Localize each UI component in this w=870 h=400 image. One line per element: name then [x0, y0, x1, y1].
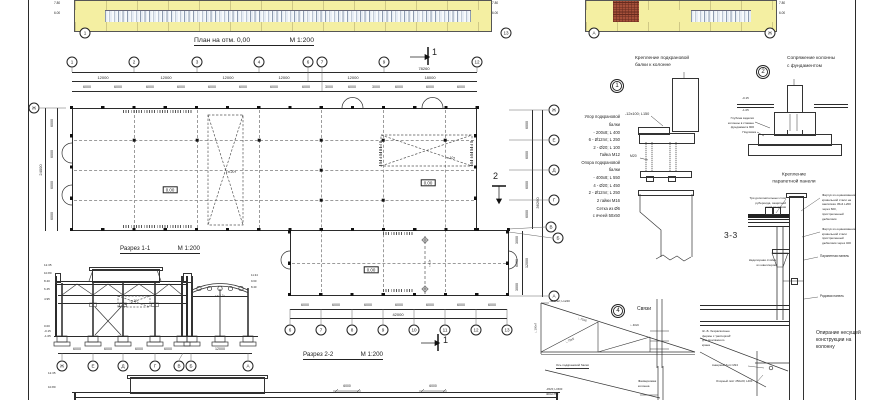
- section2-dims: [333, 389, 447, 393]
- drawing-sheet: 7.80 6.00 7.80 6.00 1 13 7.80 6.00 А Ж П…: [0, 0, 870, 400]
- plan-doors: [62, 98, 517, 270]
- axis-leaders: [40, 67, 552, 360]
- section-markers: [410, 47, 506, 351]
- detail2-linework: [755, 79, 797, 136]
- detail1-linework: [640, 72, 692, 261]
- plan-crane-zones: [208, 115, 472, 294]
- detail4-linework: [541, 299, 695, 400]
- detail33-linework: [700, 198, 820, 396]
- linework-overlay: [0, 0, 870, 400]
- section1-linework: [54, 270, 256, 346]
